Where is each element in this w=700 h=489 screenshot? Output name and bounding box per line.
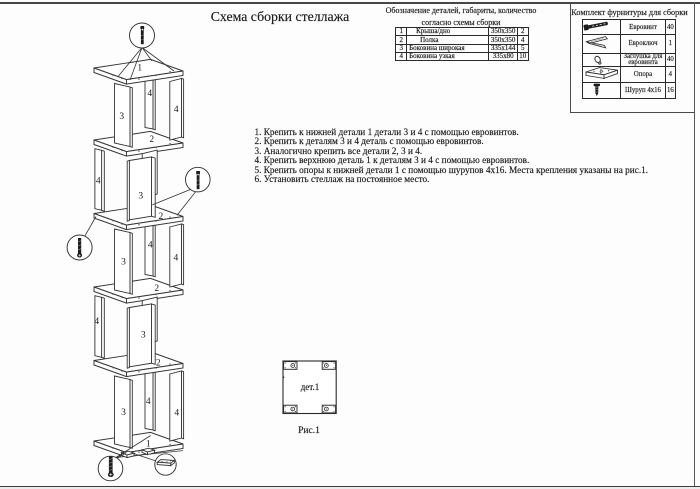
svg-text:1: 1 <box>146 439 151 449</box>
svg-text:4: 4 <box>174 409 179 419</box>
svg-text:2: 2 <box>156 358 161 368</box>
svg-text:3: 3 <box>121 258 126 268</box>
svg-text:4: 4 <box>147 89 152 99</box>
svg-text:3: 3 <box>121 408 126 418</box>
svg-text:2: 2 <box>154 284 159 294</box>
svg-text:2: 2 <box>159 212 164 222</box>
svg-text:2: 2 <box>149 135 154 145</box>
svg-text:4: 4 <box>174 254 179 264</box>
svg-text:3: 3 <box>119 112 124 122</box>
svg-text:4: 4 <box>146 397 151 407</box>
svg-text:1: 1 <box>137 64 142 74</box>
svg-text:4: 4 <box>96 177 101 187</box>
svg-text:4: 4 <box>174 105 179 115</box>
svg-text:3: 3 <box>138 192 143 202</box>
svg-text:3: 3 <box>141 331 146 341</box>
svg-text:4: 4 <box>148 241 153 251</box>
svg-text:4: 4 <box>94 317 99 327</box>
